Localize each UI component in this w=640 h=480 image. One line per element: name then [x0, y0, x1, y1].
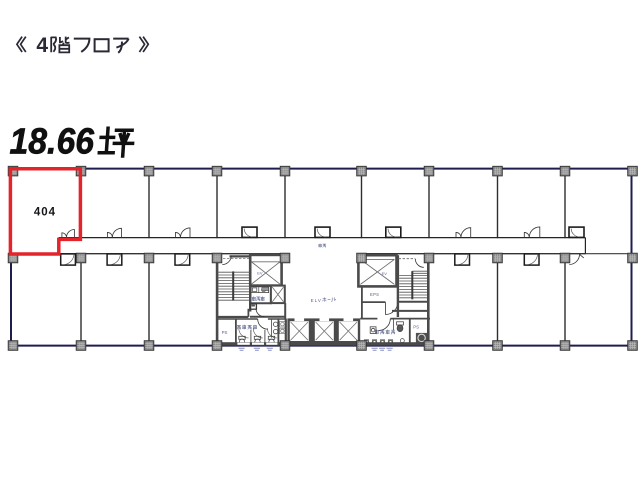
svg-text:ELV: ELV: [311, 298, 322, 303]
svg-text:PS: PS: [222, 330, 228, 335]
svg-text:4: 4: [36, 34, 48, 57]
svg-text:18.66: 18.66: [10, 121, 95, 162]
svg-text:PS: PS: [413, 324, 419, 329]
svg-text:EV: EV: [382, 271, 388, 276]
svg-text:404: 404: [34, 207, 56, 219]
svg-text:EPS: EPS: [370, 292, 379, 297]
svg-text:EV: EV: [257, 271, 263, 276]
